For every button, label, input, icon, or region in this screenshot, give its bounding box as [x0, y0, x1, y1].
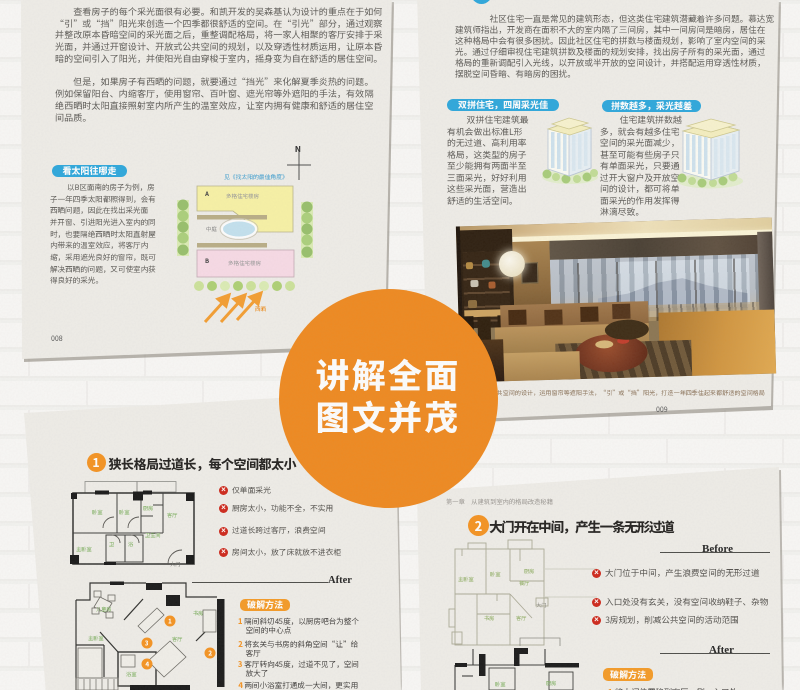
svg-text:卧室: 卧室 — [495, 681, 506, 688]
svg-text:书房: 书房 — [484, 615, 494, 622]
svg-text:主卧室: 主卧室 — [458, 576, 474, 583]
svg-text:厨房: 厨房 — [545, 680, 556, 687]
svg-text:餐厅: 餐厅 — [519, 580, 530, 587]
svg-text:卧室: 卧室 — [490, 571, 501, 578]
svg-text:厨房: 厨房 — [523, 568, 534, 575]
svg-text:大门: 大门 — [536, 602, 546, 609]
svg-text:客厅: 客厅 — [516, 615, 527, 622]
